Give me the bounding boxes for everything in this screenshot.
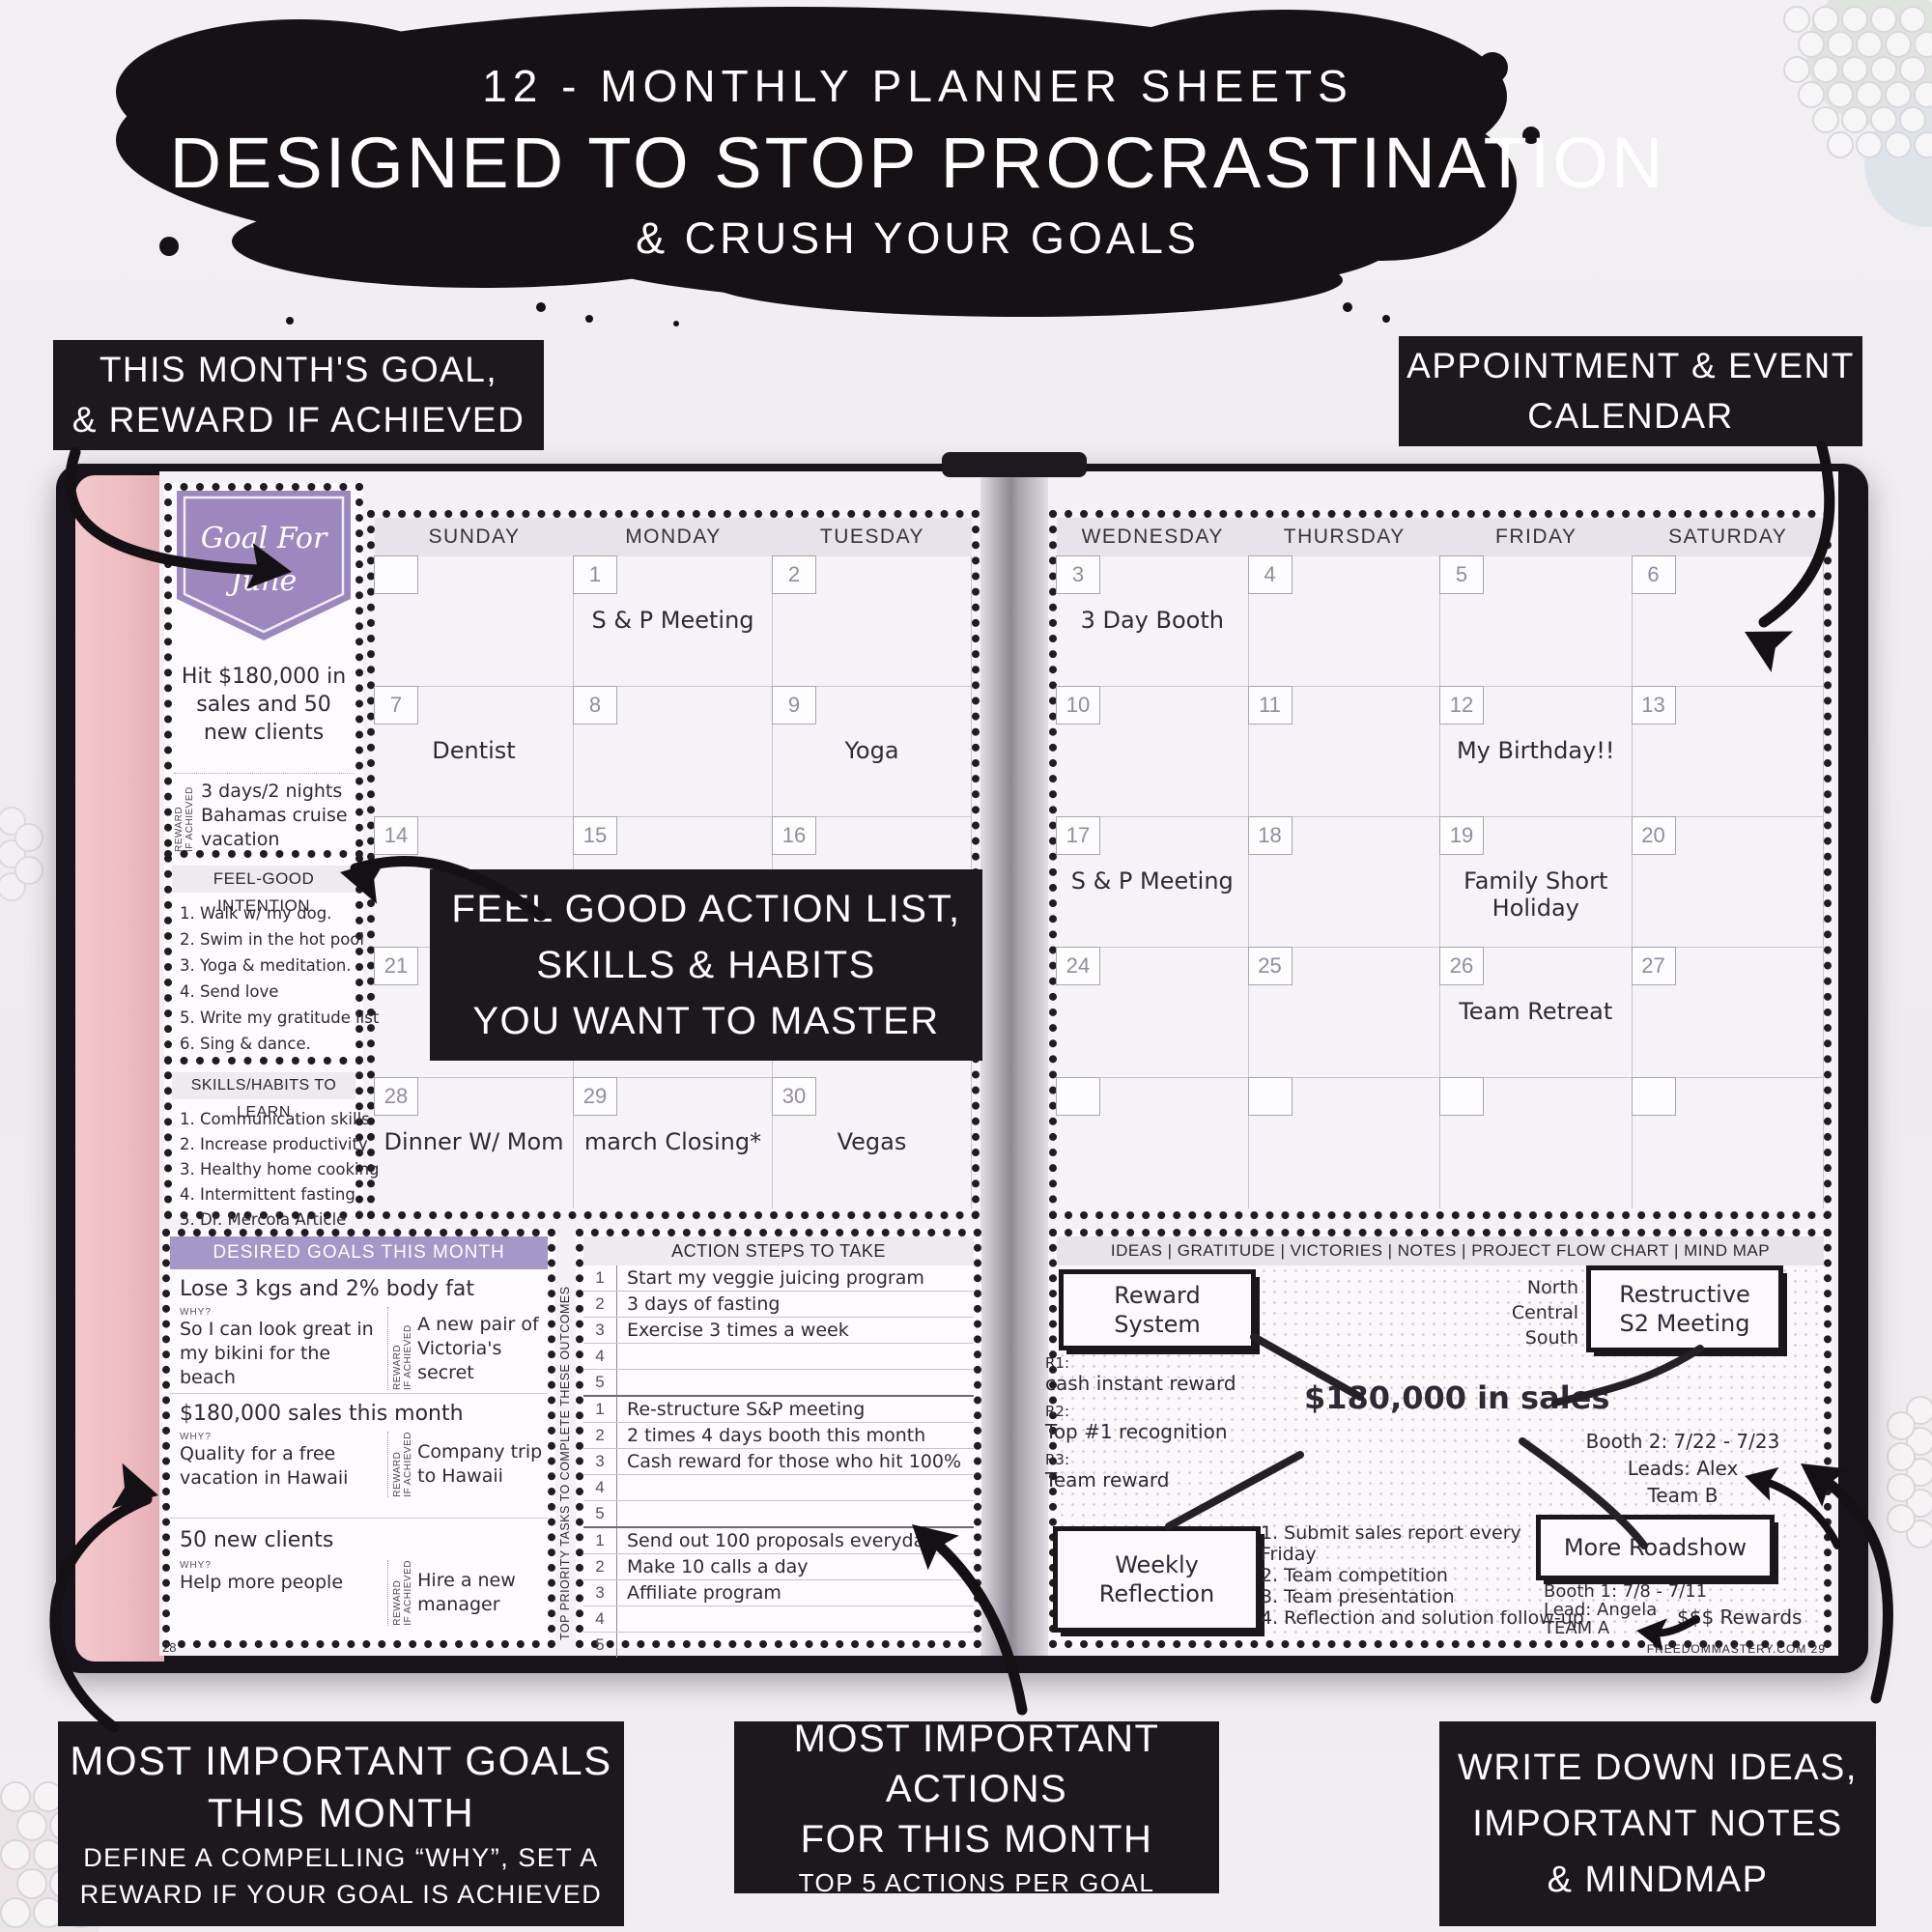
region-label: North [1495, 1275, 1578, 1300]
callout-line: FEEL GOOD ACTION LIST, [430, 881, 982, 937]
calendar-cell [1249, 1078, 1441, 1208]
calendar-cell [375, 556, 574, 687]
day-number: 11 [1248, 686, 1293, 724]
callout-most-important-goals: MOST IMPORTANT GOALS THIS MONTH DEFINE A… [58, 1721, 624, 1926]
day-number: 20 [1632, 816, 1676, 855]
mindmap-regions: North Central South [1495, 1275, 1578, 1350]
calendar-event: My Birthday!! [1444, 737, 1628, 764]
page-edges-pink [75, 475, 164, 1662]
day-header: SATURDAY [1633, 526, 1825, 549]
booth2-line: Team B [1577, 1482, 1789, 1509]
action-step-row: 4 [583, 1475, 974, 1501]
step-number: 2 [583, 1292, 617, 1317]
calendar-left-page: SUNDAY MONDAY TUESDAY 1S & P Meeting 2 7… [367, 510, 980, 1219]
mindmap-box-restructive: Restructive S2 Meeting [1586, 1265, 1783, 1352]
day-header: SUNDAY [375, 526, 574, 549]
reward-if-achieved-label: REWARD [392, 1432, 403, 1497]
mindmap-box-label: Weekly Reflection [1090, 1550, 1225, 1608]
callout-write-down-ideas: WRITE DOWN IDEAS, IMPORTANT NOTES & MIND… [1439, 1721, 1876, 1926]
calendar-cell: 20 [1633, 817, 1825, 948]
day-number: 3 [1056, 555, 1100, 594]
day-number: 18 [1248, 816, 1293, 855]
calendar-event: Team Retreat [1444, 998, 1628, 1025]
callout-line: CALENDAR [1399, 391, 1862, 441]
calendar-cell: 28Dinner W/ Mom [375, 1078, 574, 1208]
reward-item-label: R3: [1045, 1451, 1236, 1468]
calendar-cell: 9Yoga [773, 687, 972, 817]
action-step-row: 3Cash reward for those who hit 100% [583, 1449, 974, 1475]
calendar-cell [1440, 1078, 1633, 1208]
mindmap-reward-list: R1: cash instant reward R2: Top #1 recog… [1045, 1354, 1236, 1492]
callout-most-important-actions: MOST IMPORTANT ACTIONS FOR THIS MONTH TO… [734, 1721, 1219, 1893]
mindmap-box-label: More Roadshow [1564, 1534, 1747, 1561]
step-number: 1 [583, 1528, 617, 1553]
day-number: 9 [772, 686, 816, 724]
divider [164, 850, 363, 858]
step-text: Affiliate program [617, 1582, 781, 1604]
weekly-item: 2. Team competition [1261, 1565, 1579, 1586]
step-text: Re-structure S&P meeting [617, 1399, 865, 1420]
list-item: 2. Swim in the hot pool [180, 926, 355, 952]
callout-line: REWARD IF YOUR GOAL IS ACHIEVED [58, 1876, 624, 1913]
day-number: 14 [374, 816, 418, 855]
booth1-line: Booth 1: 7/8 - 7/11 [1544, 1582, 1707, 1601]
list-item: 3. Healthy home cooking [180, 1157, 355, 1182]
mindmap-box-reward-system: Reward System [1059, 1269, 1256, 1350]
day-number: 21 [374, 947, 418, 985]
day-header: THURSDAY [1249, 526, 1441, 549]
calendar-cell: 8 [574, 687, 773, 817]
reward-if-achieved-label: IF ACHIEVED [403, 1560, 413, 1626]
action-steps-group: 1Send out 100 proposals everyday 2Make 1… [583, 1528, 974, 1658]
goal-reward-block: REWARD IF ACHIEVED 3 days/2 nights Baham… [174, 773, 354, 852]
day-number: 26 [1439, 947, 1484, 985]
list-item: 4. Send love [180, 979, 355, 1005]
calendar-cell: 29march Closing* [574, 1078, 773, 1208]
title-line-2: DESIGNED TO STOP PROCRASTINATION [145, 122, 1690, 204]
spine-gutter [980, 471, 1048, 1656]
why-label: WHY? [180, 1432, 387, 1442]
day-number: 13 [1632, 686, 1676, 724]
day-number: 6 [1632, 555, 1676, 594]
mindmap-header: IDEAS | GRATITUDE | VICTORIES | NOTES | … [1057, 1236, 1824, 1265]
mindmap-box-label: Reward System [1094, 1281, 1220, 1339]
desired-goals-header: DESIRED GOALS THIS MONTH [170, 1236, 548, 1269]
action-step-row: 4 [583, 1344, 974, 1370]
calendar-right-page: WEDNESDAY THURSDAY FRIDAY SATURDAY 33 Da… [1049, 510, 1832, 1219]
action-step-row: 1Re-structure S&P meeting [583, 1397, 974, 1423]
goal-text: Lose 3 kgs and 2% body fat [170, 1269, 548, 1301]
reward-if-achieved-label: REWARD [174, 780, 185, 852]
step-text: Start my veggie juicing program [617, 1267, 924, 1289]
day-number: 15 [573, 816, 617, 855]
step-number: 4 [583, 1475, 617, 1500]
day-number: 1 [573, 555, 617, 594]
calendar-event: Family Short Holiday [1444, 867, 1628, 922]
action-step-row: 5 [583, 1501, 974, 1526]
callout-line: FOR THIS MONTH [734, 1814, 1219, 1864]
why-text: Quality for a free vacation in Hawaii [180, 1442, 387, 1491]
calendar-cell [1057, 1078, 1249, 1208]
reward-if-achieved-label: REWARD [392, 1307, 403, 1390]
action-steps-group: 1Start my veggie juicing program 23 days… [583, 1265, 974, 1397]
step-number: 2 [583, 1423, 617, 1448]
mindmap-center-goal: $180,000 in sales [1304, 1379, 1609, 1416]
why-text: So I can look great in my bikini for the… [180, 1318, 387, 1390]
step-number: 4 [583, 1606, 617, 1632]
feel-good-list: 1. Walk w/ my dog. 2. Swim in the hot po… [180, 900, 355, 1057]
day-number: 4 [1248, 555, 1293, 594]
goal-banner: Goal For June [177, 491, 351, 640]
reward-text: 3 days/2 nights Bahamas cruise vacation [201, 780, 354, 852]
step-number: 5 [583, 1370, 617, 1395]
calendar-cell: 5 [1440, 556, 1633, 687]
goal-block: 50 new clients WHY? Help more people REW… [170, 1519, 548, 1640]
day-number: 30 [772, 1077, 816, 1116]
day-number: 10 [1056, 686, 1100, 724]
list-item: 5. Write my gratitude list [180, 1005, 355, 1031]
goal-banner-text-2: June [177, 564, 351, 598]
why-label: WHY? [180, 1307, 387, 1318]
callout-line: APPOINTMENT & EVENT [1399, 341, 1862, 391]
desired-goals-panel: DESIRED GOALS THIS MONTH Lose 3 kgs and … [162, 1229, 555, 1648]
skills-list: 1. Communication skills 2. Increase prod… [180, 1107, 355, 1233]
action-step-row: 1Send out 100 proposals everyday [583, 1528, 974, 1554]
why-text: Help more people [180, 1571, 387, 1595]
mindmap-box-weekly-reflection: Weekly Reflection [1053, 1526, 1261, 1633]
day-number: 28 [374, 1077, 418, 1116]
feel-good-header: FEEL-GOOD INTENTION [172, 866, 355, 893]
reward-if-achieved-label: IF ACHIEVED [403, 1307, 413, 1390]
title-line-1: 12 - MONTHLY PLANNER SHEETS [145, 60, 1690, 112]
calendar-cell: 12My Birthday!! [1440, 687, 1633, 817]
action-steps-panel: ACTION STEPS TO TAKE 1Start my veggie ju… [576, 1229, 981, 1648]
calendar-event: Dinner W/ Mom [379, 1128, 569, 1155]
divider [164, 1057, 363, 1065]
reward-text: A new pair of Victoria's secret [417, 1313, 548, 1385]
step-number: 3 [583, 1580, 617, 1605]
step-number: 4 [583, 1344, 617, 1369]
weekly-item: 1. Submit sales report every Friday [1261, 1522, 1579, 1565]
day-number: 27 [1632, 947, 1676, 985]
skills-header: SKILLS/HABITS TO LEARN [172, 1072, 355, 1099]
day-number: 12 [1439, 686, 1484, 724]
callout-line: MOST IMPORTANT ACTIONS [734, 1714, 1219, 1814]
callout-this-months-goal: THIS MONTH'S GOAL, & REWARD IF ACHIEVED [53, 340, 544, 450]
mindmap-box-label: Restructive S2 Meeting [1607, 1280, 1762, 1338]
list-item: 1. Communication skills [180, 1107, 355, 1132]
region-label: Central [1495, 1300, 1578, 1325]
calendar-cell: 17S & P Meeting [1057, 817, 1249, 948]
day-number: 2 [772, 555, 816, 594]
step-number: 1 [583, 1397, 617, 1422]
step-text: 2 times 4 days booth this month [617, 1425, 925, 1446]
calendar-event: march Closing* [578, 1128, 768, 1155]
calendar-cell: 18 [1249, 817, 1441, 948]
day-number: 17 [1056, 816, 1100, 855]
reward-if-achieved-label: IF ACHIEVED [185, 780, 195, 852]
callout-line: TOP 5 ACTIONS PER GOAL [734, 1864, 1219, 1901]
reward-item: cash instant reward [1045, 1372, 1236, 1395]
reward-if-achieved-label: REWARD [392, 1560, 403, 1626]
action-step-row: 22 times 4 days booth this month [583, 1423, 974, 1449]
mindmap-weekly-items: 1. Submit sales report every Friday 2. T… [1261, 1522, 1579, 1629]
callout-line: THIS MONTH'S GOAL, [53, 345, 544, 395]
why-label: WHY? [180, 1560, 387, 1571]
callout-line: YOU WANT TO MASTER [430, 993, 982, 1049]
calendar-event: S & P Meeting [578, 607, 768, 634]
left-page-number: 28 [162, 1640, 176, 1655]
step-number: 3 [583, 1318, 617, 1343]
mindmap-box-more-roadshow: More Roadshow [1536, 1515, 1775, 1580]
step-number: 1 [583, 1265, 617, 1291]
weekly-item: 4. Reflection and solution follow-up [1261, 1607, 1579, 1629]
calendar-day-headers: SUNDAY MONDAY TUESDAY [375, 518, 972, 556]
calendar-cell: 26Team Retreat [1440, 948, 1633, 1078]
calendar-event: Yoga [777, 737, 967, 764]
calendar-cell [1633, 1078, 1825, 1208]
callout-appointment-calendar: APPOINTMENT & EVENT CALENDAR [1399, 336, 1862, 446]
reward-item-label: R1: [1045, 1354, 1236, 1372]
goal-block: Lose 3 kgs and 2% body fat WHY? So I can… [170, 1269, 548, 1394]
day-header: MONDAY [574, 526, 773, 549]
calendar-cell: 10 [1057, 687, 1249, 817]
calendar-cell: 19Family Short Holiday [1440, 817, 1633, 948]
calendar-cell: 13 [1633, 687, 1825, 817]
callout-line: SKILLS & HABITS [430, 937, 982, 993]
calendar-cell: 4 [1249, 556, 1441, 687]
calendar-grid: 33 Day Booth 4 5 6 10 11 12My Birthday!!… [1057, 556, 1824, 1208]
reward-item-label: R2: [1045, 1403, 1236, 1420]
calendar-cell: 24 [1057, 948, 1249, 1078]
reward-text: Hire a new manager [417, 1569, 548, 1617]
day-number [1056, 1077, 1100, 1116]
title-line-3: & CRUSH YOUR GOALS [145, 213, 1690, 264]
action-steps-header: ACTION STEPS TO TAKE [583, 1236, 974, 1265]
action-step-row: 2Make 10 calls a day [583, 1554, 974, 1580]
step-text: Send out 100 proposals everyday [617, 1530, 936, 1551]
calendar-cell: 2 [773, 556, 972, 687]
list-item: 2. Increase productivity [180, 1132, 355, 1157]
calendar-event: Vegas [777, 1128, 967, 1155]
callout-line: & REWARD IF ACHIEVED [53, 395, 544, 445]
poster-canvas: 12 - MONTHLY PLANNER SHEETS DESIGNED TO … [0, 0, 1932, 1932]
mindmap-rewards-note: $$$ Rewards [1677, 1605, 1802, 1629]
action-step-row: 5 [583, 1633, 974, 1658]
calendar-cell: 25 [1249, 948, 1441, 1078]
callout-line: & MINDMAP [1439, 1852, 1876, 1908]
calendar-cell: 11 [1249, 687, 1441, 817]
calendar-cell: 33 Day Booth [1057, 556, 1249, 687]
day-number [374, 555, 418, 594]
reward-item: Top #1 recognition [1045, 1420, 1236, 1443]
goal-text: 50 new clients [170, 1519, 548, 1552]
calendar-cell: 1S & P Meeting [574, 556, 773, 687]
calendar-cell: 7Dentist [375, 687, 574, 817]
list-item: 6. Sing & dance. [180, 1031, 355, 1057]
day-number: 19 [1439, 816, 1484, 855]
callout-feel-good: FEEL GOOD ACTION LIST, SKILLS & HABITS Y… [430, 869, 982, 1061]
step-text: Make 10 calls a day [617, 1556, 809, 1577]
right-page-footer: FREEDOMMASTERY.COM 29 [1584, 1642, 1826, 1656]
reward-if-achieved-label: IF ACHIEVED [403, 1432, 413, 1497]
reward-text: Company trip to Hawaii [417, 1440, 548, 1489]
step-number: 5 [583, 1633, 617, 1658]
goal-panel: Goal For June Hit $180,000 in sales and … [164, 483, 363, 1219]
action-step-row: 3Exercise 3 times a week [583, 1318, 974, 1344]
day-number: 24 [1056, 947, 1100, 985]
step-number: 5 [583, 1501, 617, 1526]
booth2-line: Booth 2: 7/22 - 7/23 [1577, 1428, 1789, 1455]
binder-clip [942, 452, 1087, 477]
action-step-row: 1Start my veggie juicing program [583, 1265, 974, 1292]
action-step-row: 23 days of fasting [583, 1292, 974, 1318]
day-number: 5 [1439, 555, 1484, 594]
list-item: 4. Intermittent fasting [180, 1182, 355, 1207]
region-label: South [1495, 1325, 1578, 1350]
weekly-item: 3. Team presentation [1261, 1586, 1579, 1607]
calendar-cell: 27 [1633, 948, 1825, 1078]
list-item: 3. Yoga & meditation. [180, 952, 355, 979]
day-number: 29 [573, 1077, 617, 1116]
day-header: WEDNESDAY [1057, 526, 1249, 549]
callout-line: WRITE DOWN IDEAS, [1439, 1740, 1876, 1796]
day-number: 8 [573, 686, 617, 724]
day-number [1632, 1077, 1676, 1116]
calendar-event: 3 Day Booth [1061, 607, 1244, 634]
action-step-row: 3Affiliate program [583, 1580, 974, 1606]
calendar-cell: 30Vegas [773, 1078, 972, 1208]
booth2-line: Leads: Alex [1577, 1455, 1789, 1482]
goal-block: $180,000 sales this month WHY? Quality f… [170, 1394, 548, 1519]
day-number: 7 [374, 686, 418, 724]
step-number: 3 [583, 1449, 617, 1474]
day-number: 25 [1248, 947, 1293, 985]
top-priority-side-label: TOP PRIORITY TASKS TO COMPLETE THESE OUT… [558, 1244, 572, 1640]
callout-line: DEFINE A COMPELLING “WHY”, SET A [58, 1839, 624, 1876]
month-goal-text: Hit $180,000 in sales and 50 new clients [174, 663, 354, 747]
calendar-day-headers: WEDNESDAY THURSDAY FRIDAY SATURDAY [1057, 518, 1824, 556]
day-header: FRIDAY [1440, 526, 1633, 549]
poster-title: 12 - MONTHLY PLANNER SHEETS DESIGNED TO … [145, 60, 1690, 264]
action-step-row: 5 [583, 1370, 974, 1395]
reward-item: Team reward [1045, 1468, 1236, 1492]
step-text: 3 days of fasting [617, 1293, 780, 1315]
day-header: TUESDAY [773, 526, 972, 549]
day-number [1248, 1077, 1293, 1116]
step-number: 2 [583, 1554, 617, 1579]
list-item: 1. Walk w/ my dog. [180, 900, 355, 926]
day-number [1439, 1077, 1484, 1116]
day-number: 16 [772, 816, 816, 855]
mindmap-booth2: Booth 2: 7/22 - 7/23 Leads: Alex Team B [1577, 1428, 1789, 1509]
callout-line: THIS MONTH [58, 1787, 624, 1839]
step-text: Exercise 3 times a week [617, 1320, 849, 1341]
action-step-row: 4 [583, 1606, 974, 1633]
goal-text: $180,000 sales this month [170, 1394, 548, 1426]
callout-line: MOST IMPORTANT GOALS [58, 1735, 624, 1787]
callout-line: IMPORTANT NOTES [1439, 1796, 1876, 1852]
calendar-cell: 6 [1633, 556, 1825, 687]
action-steps-group: 1Re-structure S&P meeting 22 times 4 day… [583, 1397, 974, 1528]
calendar-event: S & P Meeting [1061, 867, 1244, 895]
calendar-event: Dentist [379, 737, 569, 764]
goal-banner-text-1: Goal For [177, 522, 351, 555]
step-text: Cash reward for those who hit 100% [617, 1451, 961, 1472]
